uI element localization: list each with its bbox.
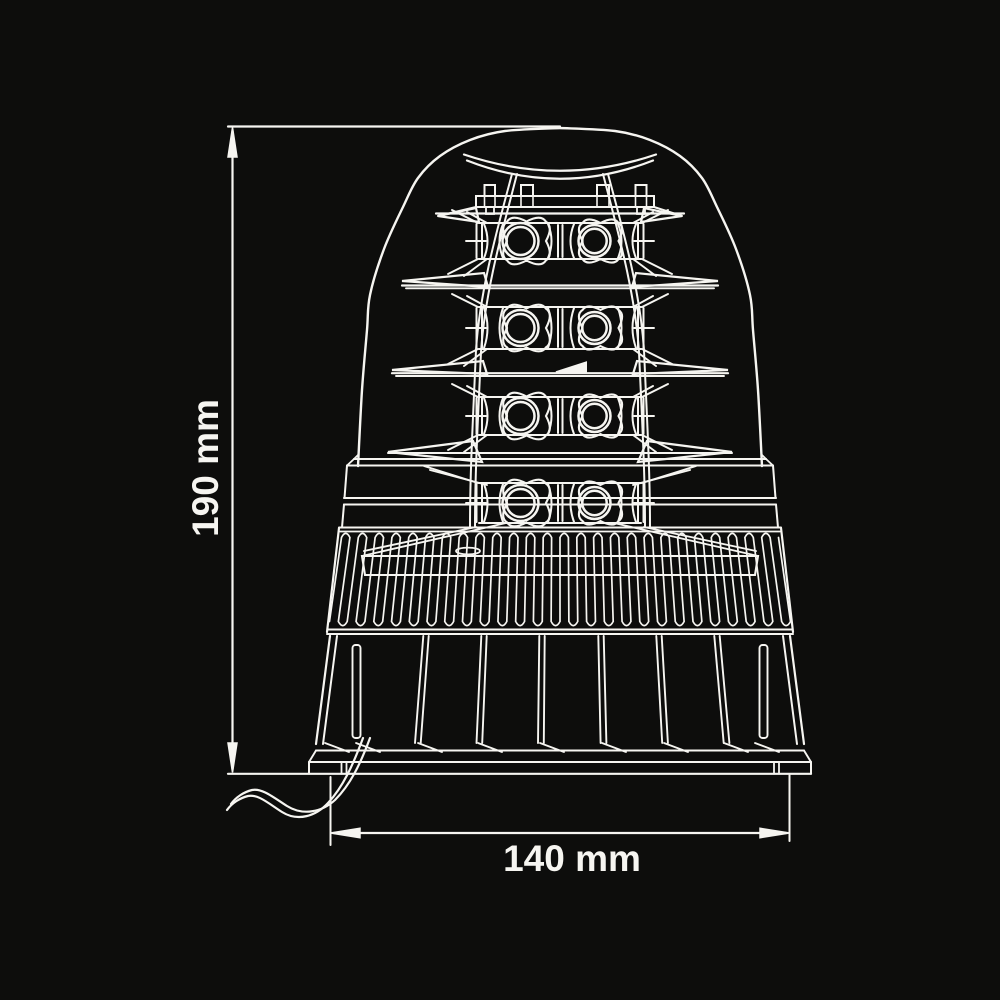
svg-text:190 mm: 190 mm — [185, 399, 226, 537]
svg-text:140 mm: 140 mm — [503, 838, 641, 879]
